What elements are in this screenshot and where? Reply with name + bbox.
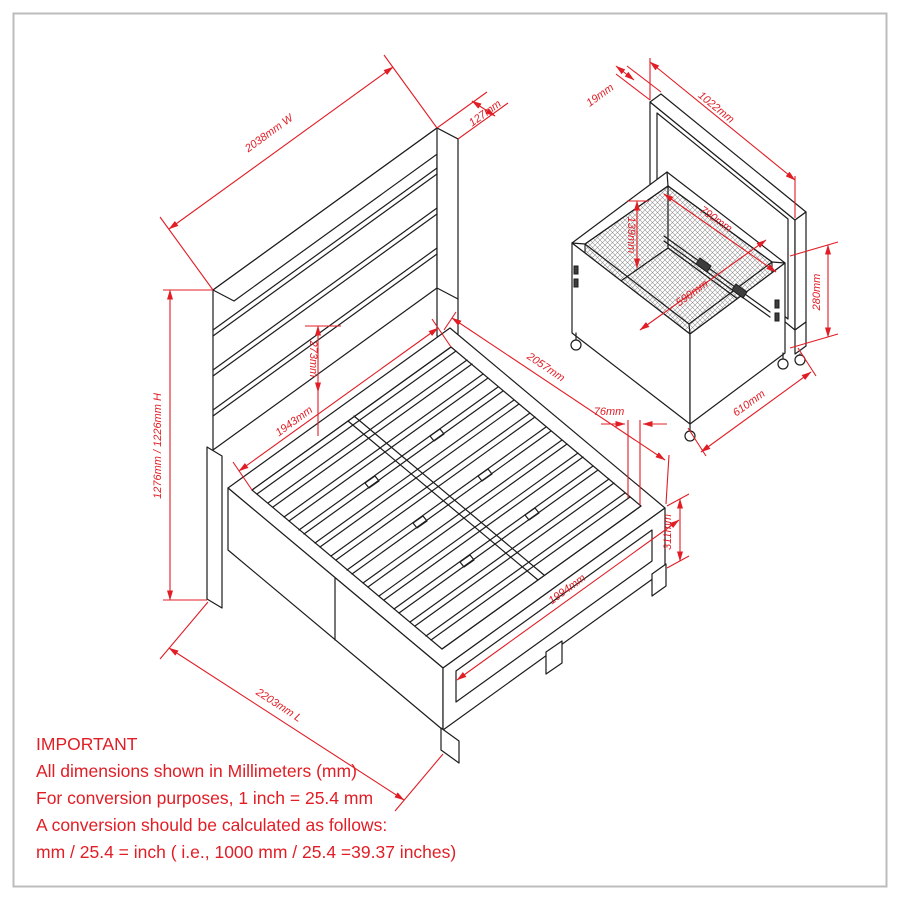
dim-label-headboard-gap: 273mm <box>307 340 319 378</box>
dim-label-inner-length: 2057mm <box>524 350 567 384</box>
screw-slot-left-2 <box>574 279 578 287</box>
dim-label-box-side-height: 280mm <box>811 274 823 312</box>
technical-drawing-page: 2038mm W 127mm 1276mm / 1226mm H 273mm 1… <box>0 0 900 900</box>
dim-label-panel-thickness: 19mm <box>584 82 616 110</box>
back-panel-side-edge <box>795 212 806 330</box>
notes-line-4: mm / 25.4 = inch ( i.e., 1000 mm / 25.4 … <box>36 839 456 866</box>
dim-label-box-inner-depth: 139mm <box>625 217 637 254</box>
notes-line-2: For conversion purposes, 1 inch = 25.4 m… <box>36 785 456 812</box>
dim-label-rail-height: 311mm <box>662 514 674 550</box>
notes-line-3: A conversion should be calculated as fol… <box>36 812 456 839</box>
dim-headboard-thickness: 127mm <box>437 92 508 139</box>
headboard-left-leg <box>207 447 222 608</box>
caster-wheel-left <box>571 340 581 350</box>
dim-bed-height: 1276mm / 1226mm H <box>152 290 213 600</box>
screw-slot-left-1 <box>574 266 578 274</box>
dim-label-bed-height: 1276mm / 1226mm H <box>152 393 164 499</box>
notes-block: IMPORTANT All dimensions shown in Millim… <box>36 731 456 866</box>
notes-line-1: All dimensions shown in Millimeters (mm) <box>36 758 456 785</box>
storage-box-view <box>571 94 806 441</box>
dim-label-bed-width: 2038mm W <box>242 111 297 155</box>
bed-isometric-view <box>207 128 666 763</box>
dim-label-panel-width: 1022mm <box>695 90 736 126</box>
screw-slot-right-1 <box>775 300 779 308</box>
dim-label-slat-thickness: 76mm <box>594 406 625 418</box>
dim-rail-height: 311mm <box>662 494 689 568</box>
screw-slot-right-2 <box>775 313 779 321</box>
caster-wheel-right <box>778 359 788 369</box>
headboard-side-edge <box>437 128 458 299</box>
dim-label-box-depth: 610mm <box>731 388 768 419</box>
notes-title: IMPORTANT <box>36 731 456 758</box>
